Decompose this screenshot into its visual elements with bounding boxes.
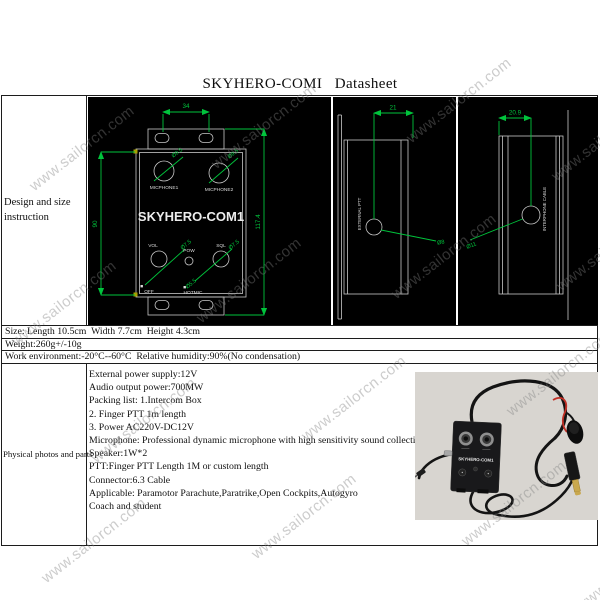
front-product-name: SKYHERO-COM1 bbox=[138, 209, 244, 224]
ptt-hole-dia: Ø8 bbox=[437, 239, 445, 246]
vol-label: VOL bbox=[148, 243, 158, 249]
dim-side-right: 20.9 bbox=[509, 110, 522, 117]
size-row: Size: Length 10.5cm Width 7.7cm Height 4… bbox=[2, 326, 597, 339]
front-view-drawing: 34 90 117.4 Ø9.5 Ø9.5 Ø7.5 bbox=[88, 97, 331, 325]
side-view-left-drawing: 21 Ø8 EXTERNAL PTT bbox=[333, 97, 456, 325]
environment-row: Work environment:-20°C--60°C Relative hu… bbox=[2, 351, 597, 364]
dim-left-height: 90 bbox=[92, 220, 99, 228]
spec-line: Coach and student bbox=[89, 500, 419, 513]
interphone-cable-label: INTERPHONE CABLE bbox=[542, 187, 547, 231]
sql-label: SQL bbox=[216, 243, 226, 249]
spec-line: PTT:Finger PTT Length 1M or custom lengt… bbox=[89, 460, 419, 473]
spec-line: Audio output power:700MW bbox=[89, 381, 419, 394]
spec-line: 2. Finger PTT 1m length bbox=[89, 408, 419, 421]
product-photo: SKYHERO-COM1 bbox=[415, 372, 598, 520]
side-right-outline bbox=[499, 110, 568, 320]
cable-hole-dia: Ø11 bbox=[466, 241, 478, 250]
side-left-outline bbox=[338, 115, 408, 319]
off-label: OFF bbox=[144, 289, 154, 295]
datasheet-table: Design and size instruction bbox=[1, 95, 598, 546]
datasheet-page: SKYHERO-COMI Datasheet Design and size i… bbox=[0, 0, 600, 600]
photos-row-label: Physical photos and parts bbox=[2, 364, 87, 545]
page-title: SKYHERO-COMI Datasheet bbox=[0, 76, 600, 93]
off-indicator-dot bbox=[141, 285, 143, 287]
spec-line: Microphone: Professional dynamic microph… bbox=[89, 434, 419, 447]
pow-label: POW bbox=[183, 248, 195, 254]
sql-knob-dia: Ø7.5 bbox=[228, 239, 241, 251]
cad-grip-bottom bbox=[134, 293, 138, 297]
photo-background bbox=[415, 372, 598, 520]
spec-list: External power supply:12V Audio output p… bbox=[89, 368, 419, 513]
weight-row: Weight:260g+/-10g bbox=[2, 339, 597, 351]
photos-row: Physical photos and parts External power… bbox=[2, 364, 597, 545]
hotmic-label: HOTMIC bbox=[184, 290, 203, 296]
side-left-dimensions: 21 Ø8 bbox=[374, 105, 445, 247]
dim-side-left: 21 bbox=[389, 105, 397, 112]
micphone1-label: MICPHONE1 bbox=[150, 185, 179, 191]
spec-line: Connector:6.3 Cable bbox=[89, 474, 419, 487]
design-row-label: Design and size instruction bbox=[2, 96, 87, 325]
cad-grip-top bbox=[134, 150, 138, 154]
micphone2-label: MICPHONE2 bbox=[205, 187, 234, 193]
spec-line: Speaker:1W*2 bbox=[89, 447, 419, 460]
side-right-dimensions: 20.9 Ø11 bbox=[466, 110, 531, 251]
side-view-right-drawing: 20.9 Ø11 INTERPHONE CABLE bbox=[458, 97, 598, 325]
dim-top-width: 34 bbox=[182, 103, 190, 110]
spec-line: Packing list: 1.Intercom Box bbox=[89, 394, 419, 407]
spec-line: External power supply:12V bbox=[89, 368, 419, 381]
spec-line: Applicable: Paramotor Parachute,Paratrik… bbox=[89, 487, 419, 500]
design-row: Design and size instruction bbox=[2, 96, 597, 326]
spec-line: 3. Power AC220V-DC12V bbox=[89, 421, 419, 434]
dim-right-height: 117.4 bbox=[255, 214, 262, 230]
photo-side-jack bbox=[444, 451, 452, 456]
external-ptt-label: EXTERNAL PTT bbox=[357, 197, 362, 230]
